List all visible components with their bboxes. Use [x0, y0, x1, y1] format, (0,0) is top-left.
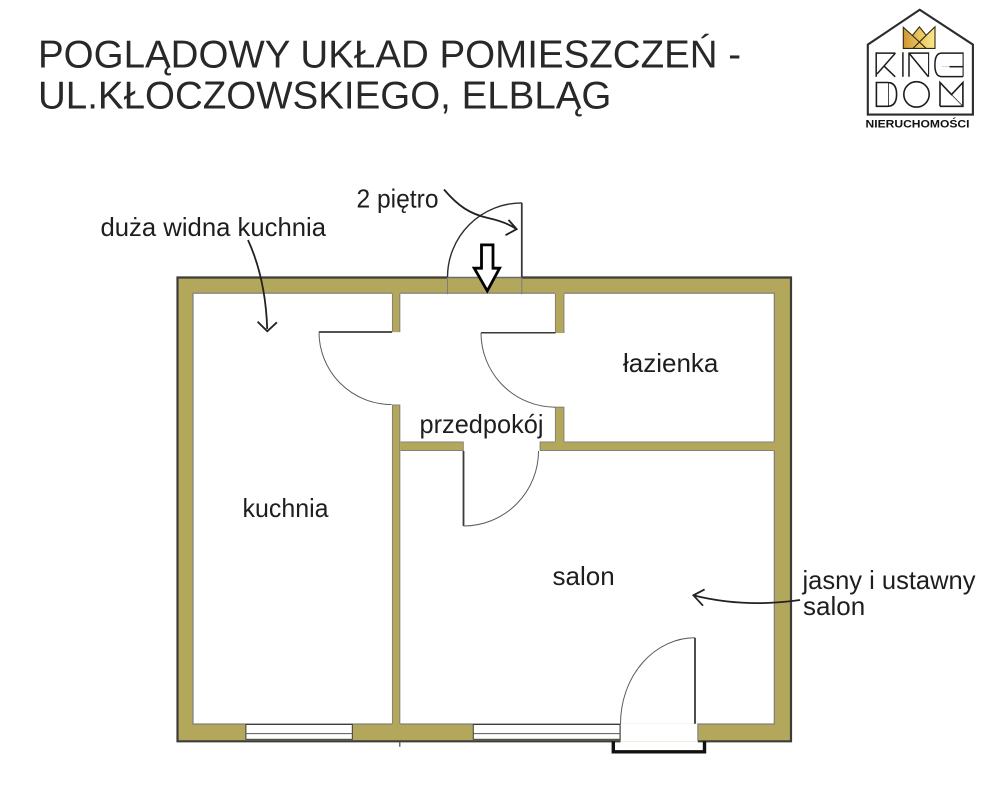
- svg-text:łazienka: łazienka: [623, 348, 719, 378]
- svg-text:salon: salon: [553, 561, 615, 591]
- svg-text:POGLĄDOWY UKŁAD POMIESZCZEŃ -: POGLĄDOWY UKŁAD POMIESZCZEŃ -: [38, 34, 741, 77]
- svg-text:przedpokój: przedpokój: [420, 409, 544, 439]
- svg-text:salon: salon: [803, 591, 865, 621]
- svg-text:kuchnia: kuchnia: [243, 493, 330, 523]
- svg-text:NIERUCHOMOŚCI: NIERUCHOMOŚCI: [866, 118, 970, 131]
- svg-text:2 piętro: 2 piętro: [357, 184, 439, 214]
- svg-text:UL.KŁOCZOWSKIEGO, ELBLĄG: UL.KŁOCZOWSKIEGO, ELBLĄG: [38, 75, 611, 118]
- svg-text:duża widna kuchnia: duża widna kuchnia: [101, 212, 327, 242]
